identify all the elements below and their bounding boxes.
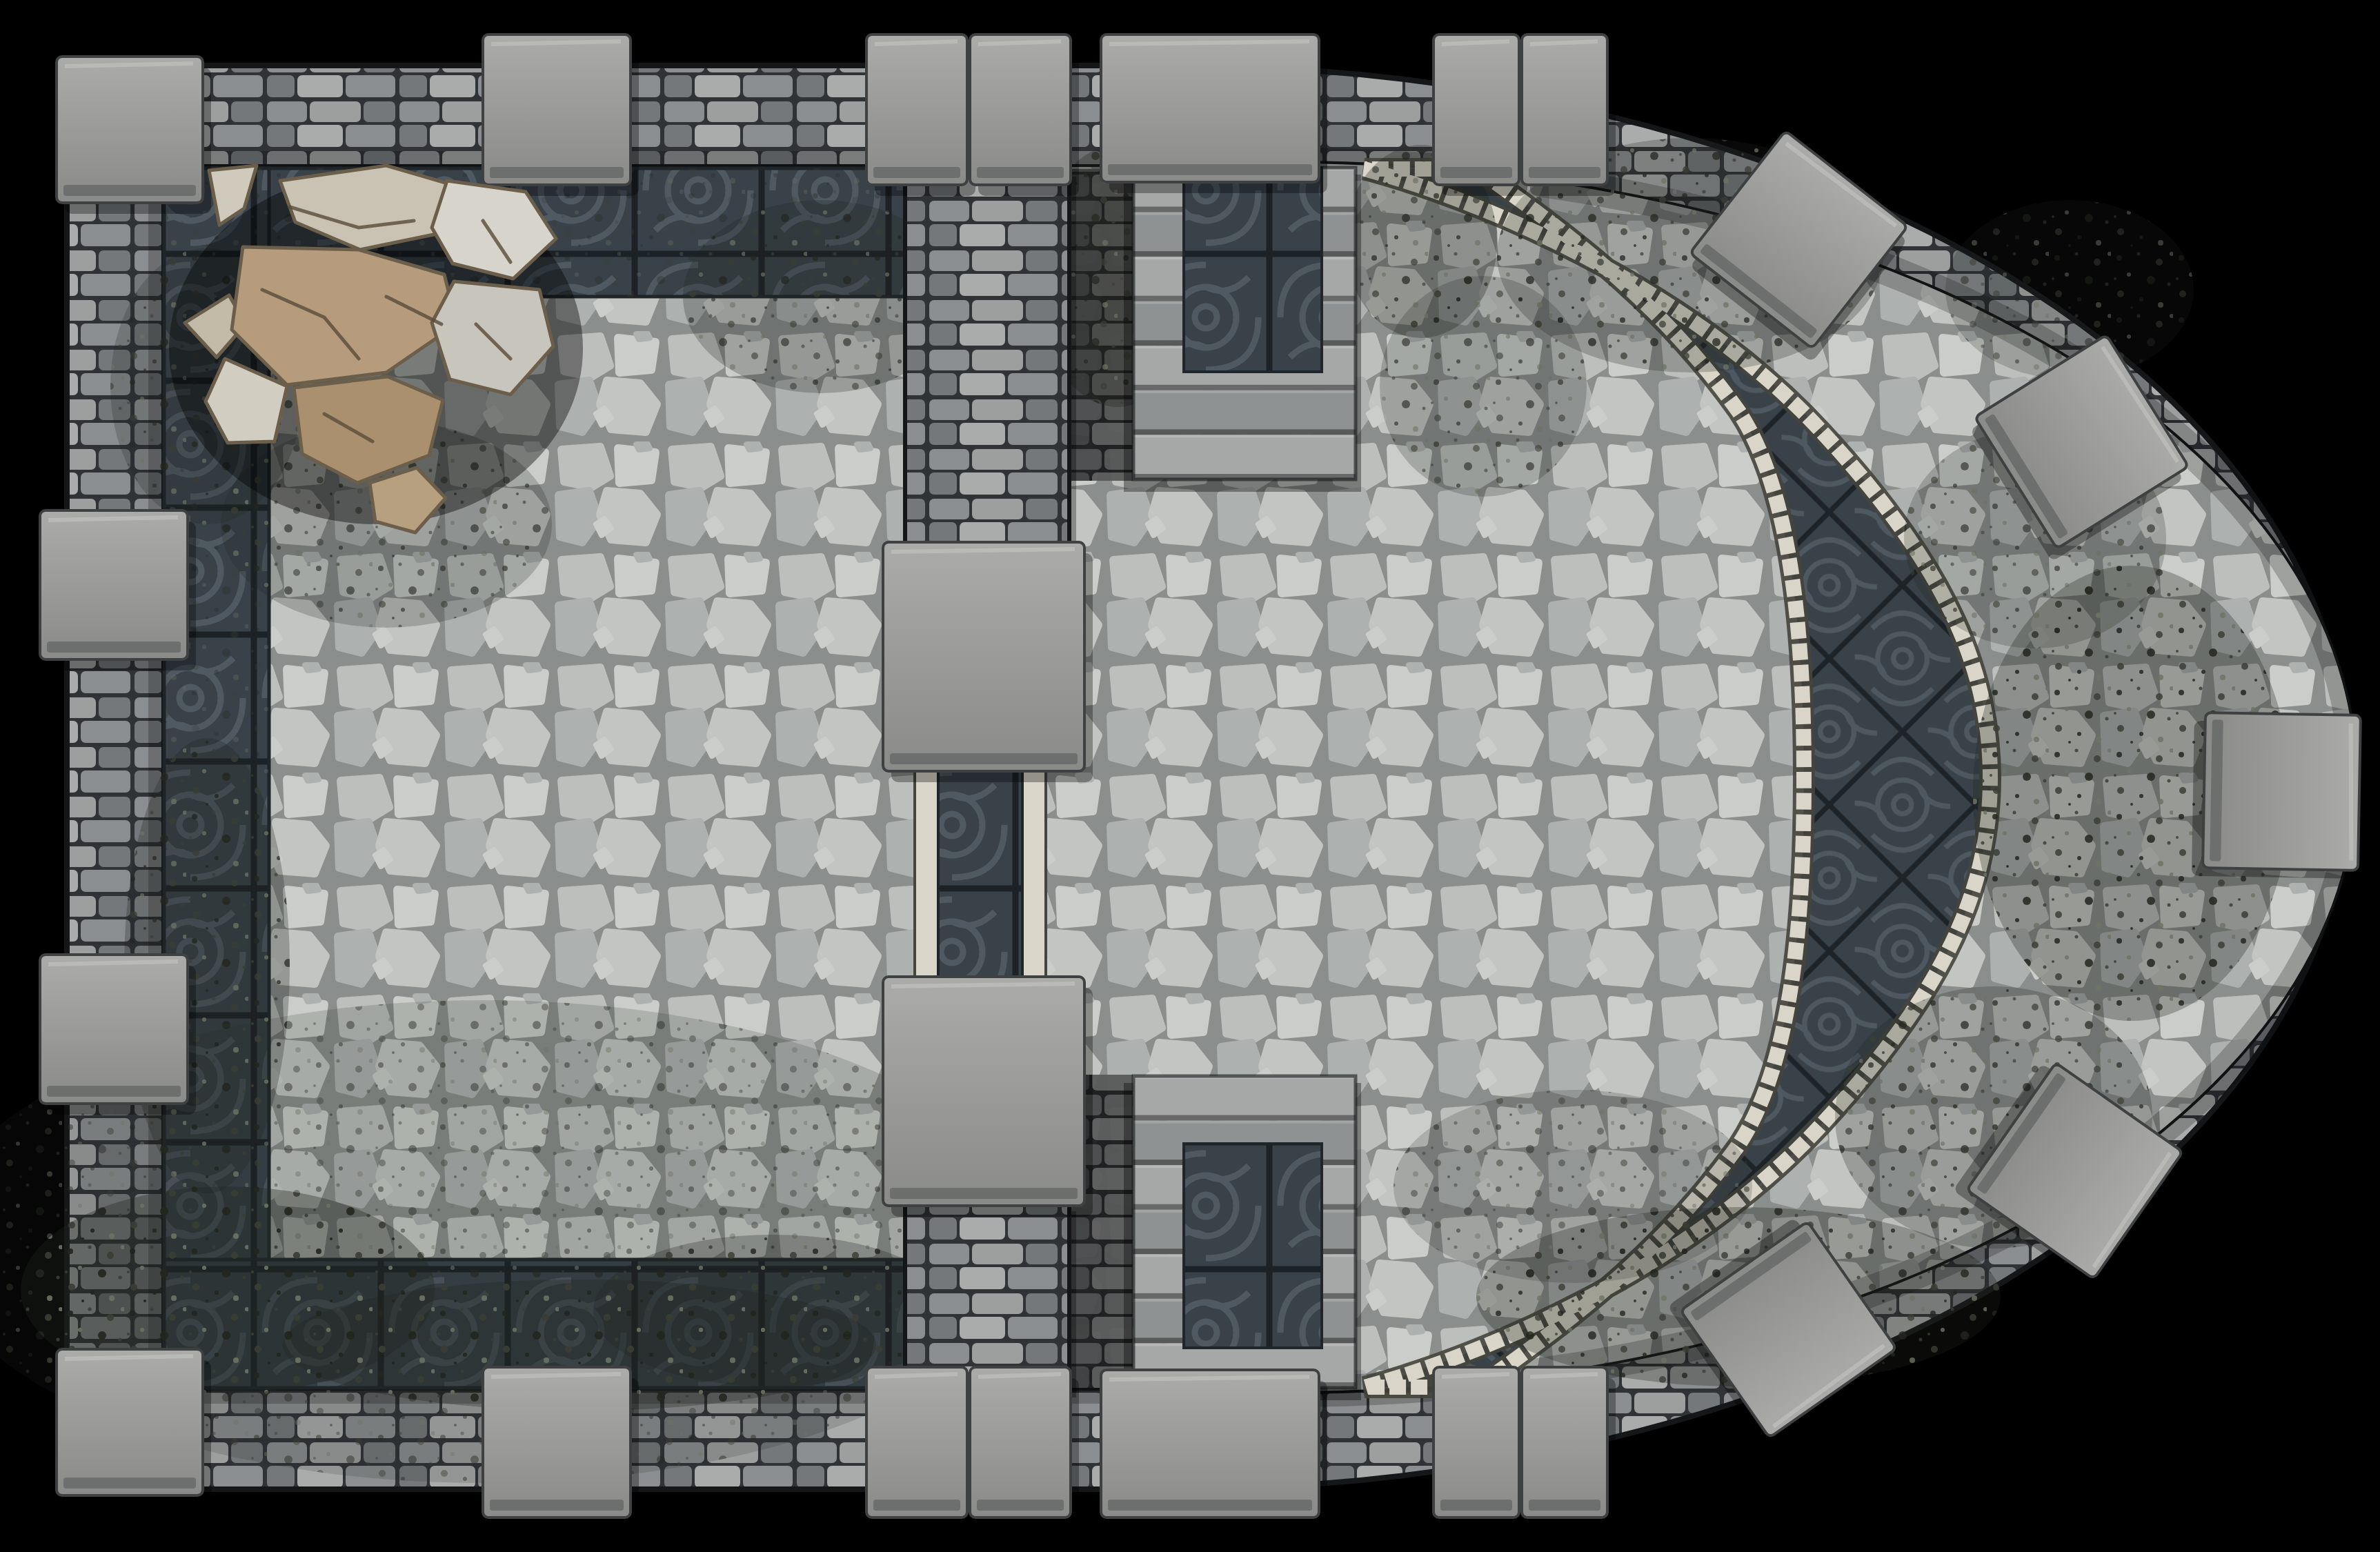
- pillar-highlight: [875, 1374, 958, 1377]
- moss-speckle: [1394, 1090, 1752, 1283]
- pillar: [866, 34, 975, 196]
- pillar-highlight: [1530, 1374, 1598, 1377]
- pillar-highlight: [1442, 1374, 1509, 1377]
- pillar-highlight: [65, 63, 193, 66]
- stair-tread-shadow: [1133, 385, 1356, 390]
- stair-tread: [1133, 390, 1356, 435]
- stair-tread-highlight: [1133, 390, 1356, 393]
- pillar: [1101, 34, 1327, 193]
- pillar: [57, 1349, 211, 1506]
- pillar-base-shade: [63, 1478, 196, 1489]
- pillar: [883, 542, 1093, 782]
- pillar-cap: [1101, 1370, 1319, 1518]
- pillar-base-shade: [1529, 1500, 1600, 1511]
- pillar-cap: [1434, 34, 1519, 185]
- pillar-highlight: [875, 41, 958, 44]
- staircase: [1124, 1076, 1361, 1400]
- channel-trim: [1022, 771, 1046, 977]
- pillar: [1434, 34, 1527, 196]
- stair-tread: [1133, 1076, 1356, 1121]
- pillar-cap: [1101, 34, 1319, 182]
- center-wall-segment: [905, 168, 1069, 546]
- channel-knot-tiles: [938, 771, 1022, 977]
- pillar: [57, 57, 211, 214]
- pillar-highlight: [1442, 41, 1509, 44]
- pillar-cap: [883, 977, 1084, 1206]
- pillar-base-shade: [47, 1086, 181, 1097]
- pillar-base-shade: [890, 1188, 1078, 1199]
- pillar-base-shade: [490, 1500, 624, 1511]
- pillar-cap: [1522, 1367, 1607, 1518]
- pillar-highlight: [2348, 724, 2353, 861]
- pillar-cap: [2203, 713, 2361, 870]
- pillar-highlight: [1109, 1377, 1309, 1380]
- pillar-cap: [57, 1349, 203, 1495]
- pillar: [483, 34, 639, 196]
- pillar-highlight: [491, 41, 621, 44]
- pillar-cap: [57, 57, 203, 203]
- pillar: [1434, 1367, 1527, 1529]
- pillar-cap: [483, 1367, 631, 1518]
- pillar: [40, 510, 196, 670]
- pillar-highlight: [978, 41, 1061, 44]
- pillar: [483, 1367, 639, 1529]
- pillar-highlight: [48, 517, 178, 520]
- pillar-base-shade: [47, 641, 181, 653]
- pillar-highlight: [48, 962, 178, 964]
- pillar: [1101, 1370, 1327, 1529]
- pillar: [1522, 34, 1616, 196]
- pillar-base-shade: [1440, 1500, 1512, 1511]
- stair-tread-highlight: [1133, 435, 1356, 437]
- pillar-base-shade: [977, 167, 1064, 178]
- stair-knot-runner: [1184, 168, 1322, 372]
- stair-tread: [1133, 435, 1356, 479]
- stair-tread-highlight: [1133, 1121, 1356, 1124]
- moss-speckle: [593, 1235, 952, 1386]
- pillar-base-shade: [873, 167, 960, 178]
- pillar-highlight: [1109, 41, 1309, 44]
- pillar-cap: [40, 955, 188, 1104]
- apse-buttress: [2192, 713, 2361, 879]
- pillar-cap: [1522, 34, 1607, 185]
- pillar-base-shade: [490, 167, 624, 178]
- pillar-base-shade: [977, 1500, 1064, 1511]
- stair-knot-runner: [1184, 1144, 1322, 1348]
- pillar: [883, 977, 1093, 1217]
- pillar-cap: [883, 542, 1084, 771]
- pillar-highlight: [891, 549, 1075, 552]
- pillar: [1522, 1367, 1616, 1529]
- pillar-highlight: [978, 1374, 1061, 1377]
- stair-tread-shadow: [1133, 429, 1356, 435]
- moss-speckle: [1945, 200, 2194, 379]
- staircase: [1124, 168, 1361, 492]
- pillar-cap: [40, 510, 188, 659]
- pillar-cap: [970, 1367, 1071, 1518]
- center-wall-segment: [905, 1203, 1069, 1389]
- pillar-cap: [1434, 1367, 1519, 1518]
- pillar-base-shade: [63, 185, 196, 196]
- pillar-highlight: [891, 984, 1075, 986]
- pillar-base-shade: [1529, 167, 1600, 178]
- pillar-highlight: [491, 1374, 621, 1377]
- pillar-cap: [483, 34, 631, 185]
- battle-map-image: [0, 0, 2380, 1552]
- pillar-cap: [970, 34, 1071, 185]
- pillar-cap: [866, 1367, 967, 1518]
- moss-speckle: [1380, 276, 1587, 497]
- pillar: [866, 1367, 975, 1529]
- pillar: [40, 955, 196, 1115]
- pillar: [970, 1367, 1079, 1529]
- pillar: [970, 34, 1079, 196]
- channel-trim: [915, 771, 938, 977]
- pillar-base-shade: [890, 753, 1078, 764]
- map-root: [0, 0, 2380, 1552]
- pillar-base-shade: [1440, 167, 1512, 178]
- pillar-highlight: [1530, 41, 1598, 44]
- pillar-cap: [866, 34, 967, 185]
- stair-tread-shadow: [1133, 1115, 1356, 1121]
- pillar-base-shade: [1108, 1500, 1312, 1511]
- pillar-base-shade: [1108, 164, 1312, 175]
- pillar-highlight: [65, 1356, 193, 1359]
- pillar-base-shade: [873, 1500, 960, 1511]
